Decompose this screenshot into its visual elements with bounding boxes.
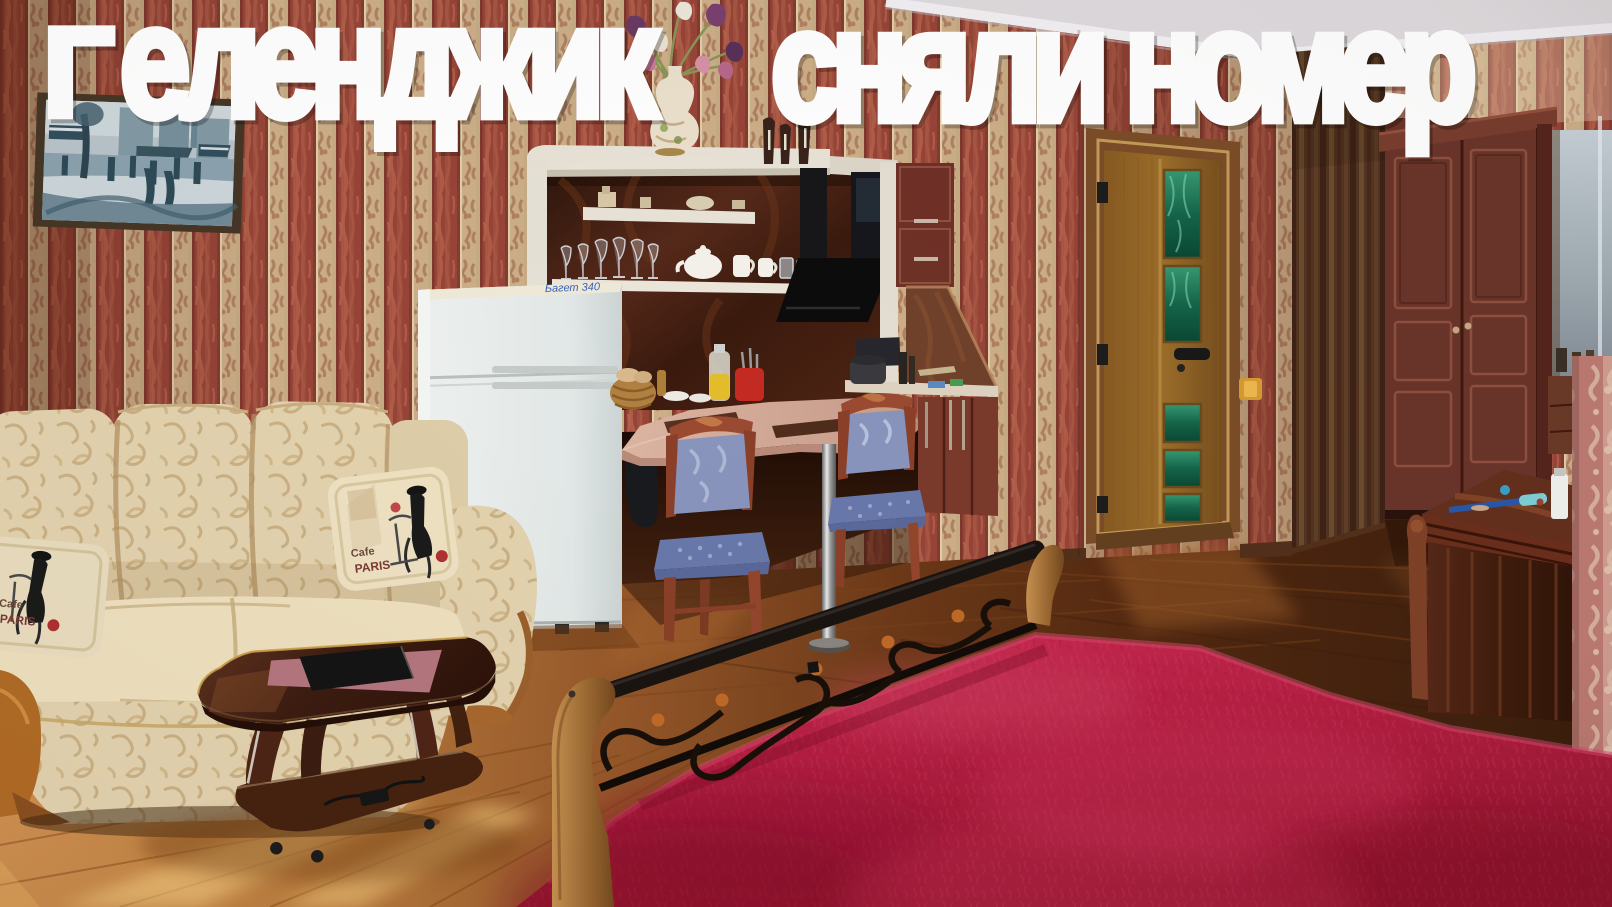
svg-text:сняли номер: сняли номер	[771, 0, 1477, 154]
svg-text:Г: Г	[43, 2, 114, 143]
svg-text:Cafe: Cafe	[0, 597, 23, 611]
svg-text:еленджик: еленджик	[120, 0, 658, 150]
svg-text:Багет 340: Багет 340	[545, 281, 601, 295]
